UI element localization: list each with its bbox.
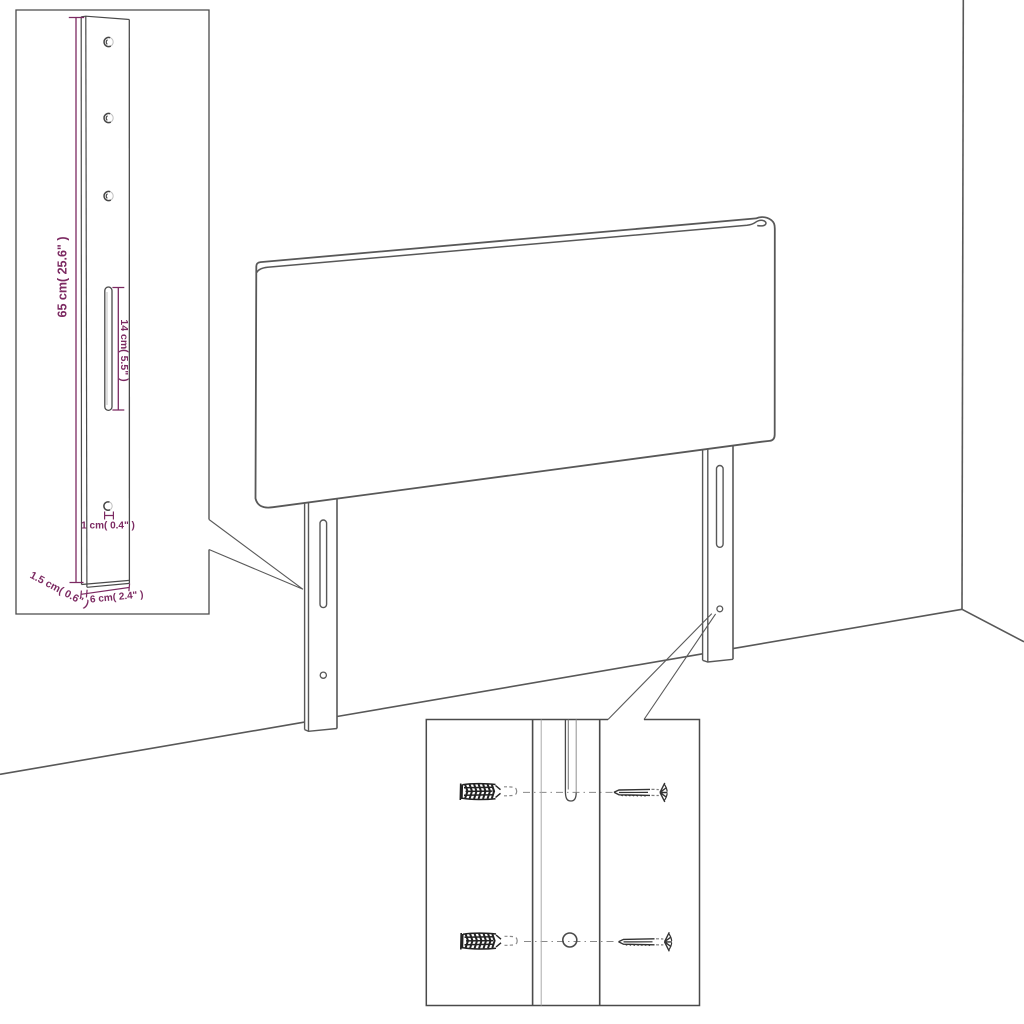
svg-text:1 cm( 0.4" ): 1 cm( 0.4" ) [81,521,135,532]
svg-text:65 cm( 25.6" ): 65 cm( 25.6" ) [56,237,70,318]
svg-text:14 cm( 5.5" ): 14 cm( 5.5" ) [118,319,130,381]
